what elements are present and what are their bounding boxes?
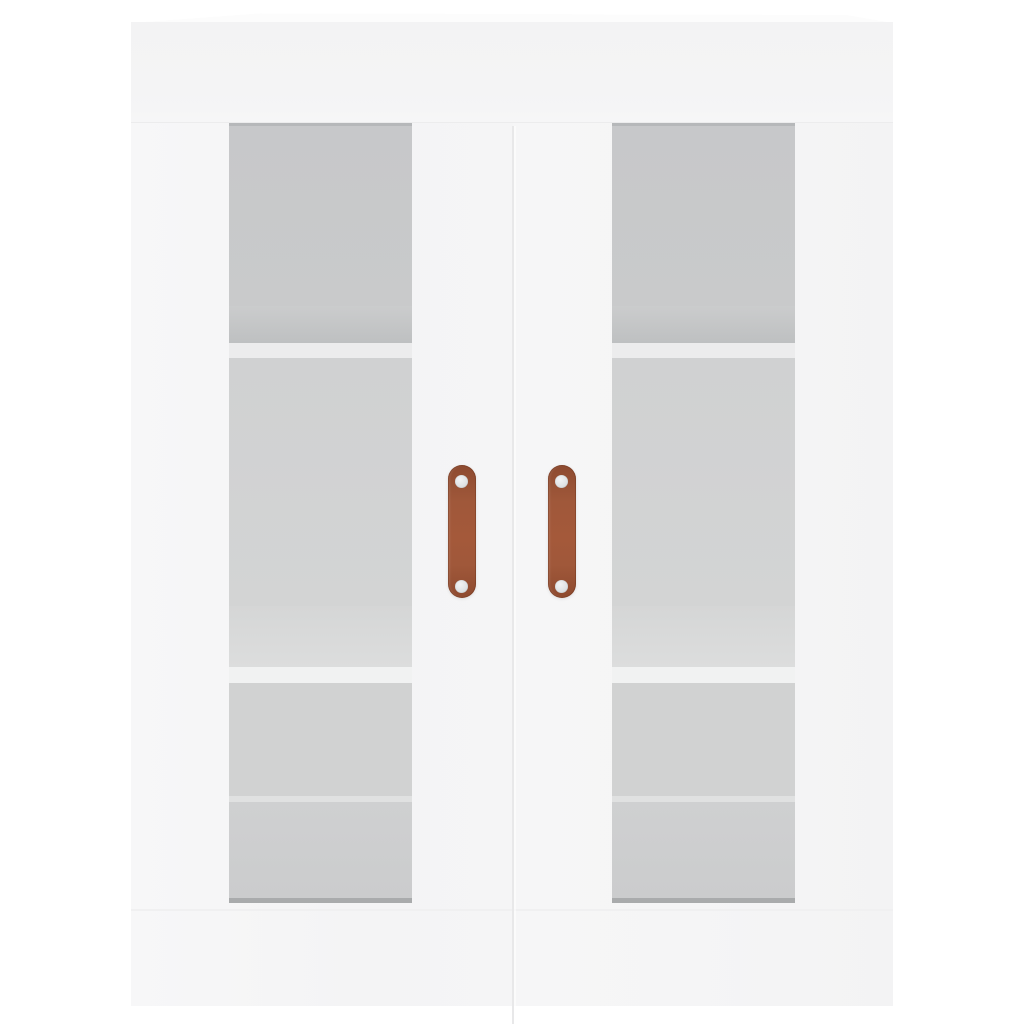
door-gap-seam (512, 126, 514, 1024)
glass-compartment-bottom (612, 802, 795, 898)
shelf-surface (229, 606, 412, 667)
right-door-glass-panel (612, 123, 795, 903)
glass-compartment-middle (612, 358, 795, 606)
handle-screw-bottom (455, 580, 468, 593)
glass-reflection (229, 903, 412, 1024)
shelf-front-edge (229, 343, 412, 358)
wall-cabinet (131, 22, 893, 1006)
left-door-glass-panel (229, 123, 412, 903)
cabinet-doors-row (131, 123, 893, 1006)
glass-compartment-lower (612, 683, 795, 796)
glass-bottom-shadow (229, 898, 412, 903)
shelf-front-edge (612, 667, 795, 683)
glass-compartment-lower (229, 683, 412, 796)
right-door-handle (548, 465, 576, 598)
shelf-front-edge (229, 667, 412, 683)
product-photo-stage (0, 0, 1024, 1024)
glass-compartment-top (612, 126, 795, 306)
shelf-surface (612, 306, 795, 343)
handle-screw-bottom (555, 580, 568, 593)
handle-screw-top (455, 475, 468, 488)
glass-compartment-middle (229, 358, 412, 606)
glass-compartment-bottom (229, 802, 412, 898)
shelf-front-edge (612, 343, 795, 358)
handle-screw-top (555, 475, 568, 488)
left-door-handle (448, 465, 476, 598)
cabinet-header-panel (131, 22, 893, 123)
glass-reflection (612, 903, 795, 1024)
glass-bottom-shadow (612, 898, 795, 903)
glass-compartment-top (229, 126, 412, 306)
shelf-surface (229, 306, 412, 343)
shelf-surface (612, 606, 795, 667)
